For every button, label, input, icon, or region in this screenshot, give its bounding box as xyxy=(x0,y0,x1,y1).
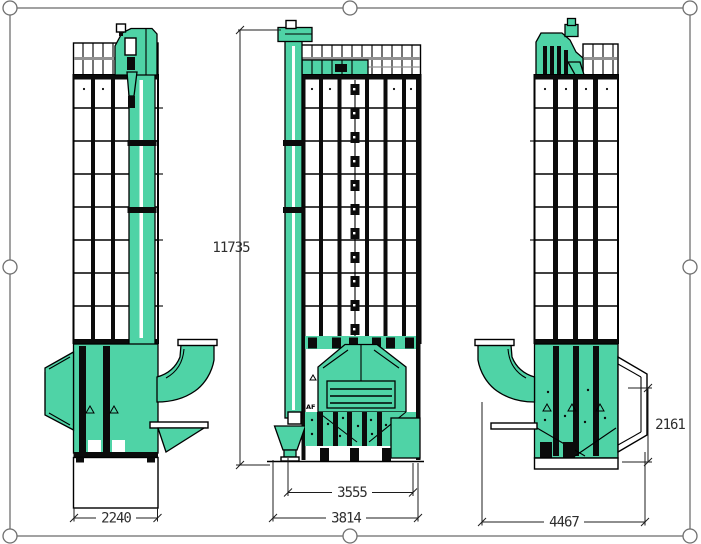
fan-box xyxy=(391,418,420,458)
base-plinth xyxy=(535,458,619,469)
dim-text-3555: 3555 xyxy=(337,485,367,501)
dim-text-2240: 2240 xyxy=(101,511,131,527)
left-side-view xyxy=(45,24,217,508)
right-side-view xyxy=(475,19,647,470)
air-outlet-hood xyxy=(618,357,647,452)
elevator-boot-hopper xyxy=(275,412,306,461)
dimension-left-base-width: 2240 xyxy=(70,508,162,527)
fan-inlet-elbow xyxy=(475,340,535,403)
engineering-drawing: AF xyxy=(0,0,701,544)
discharge-chute xyxy=(150,422,208,452)
top-band xyxy=(583,44,618,75)
dimension-overall-height: 11735 xyxy=(212,26,281,469)
top-band xyxy=(302,45,421,75)
lower-section xyxy=(535,344,619,458)
dim-text-2161: 2161 xyxy=(655,417,685,433)
side-shelf xyxy=(491,423,537,429)
dim-text-height: 11735 xyxy=(212,240,250,256)
drawing-sheet: AF xyxy=(0,0,701,544)
af-annotation: AF xyxy=(306,403,315,411)
air-intake-duct xyxy=(45,352,74,430)
dimension-front-inner-width: 3555 xyxy=(284,458,417,501)
fan-outlet-elbow xyxy=(157,340,217,403)
elevator-vent-cap xyxy=(117,24,126,32)
front-view: AF xyxy=(267,21,424,462)
base-plinth xyxy=(74,458,159,509)
lower-section xyxy=(74,344,159,458)
dim-text-4467: 4467 xyxy=(549,515,579,531)
dim-text-3814: 3814 xyxy=(331,511,361,527)
grain-feed-duct xyxy=(302,60,368,75)
elevator-vent-cap xyxy=(568,19,576,26)
drying-tower-grid xyxy=(530,75,618,345)
